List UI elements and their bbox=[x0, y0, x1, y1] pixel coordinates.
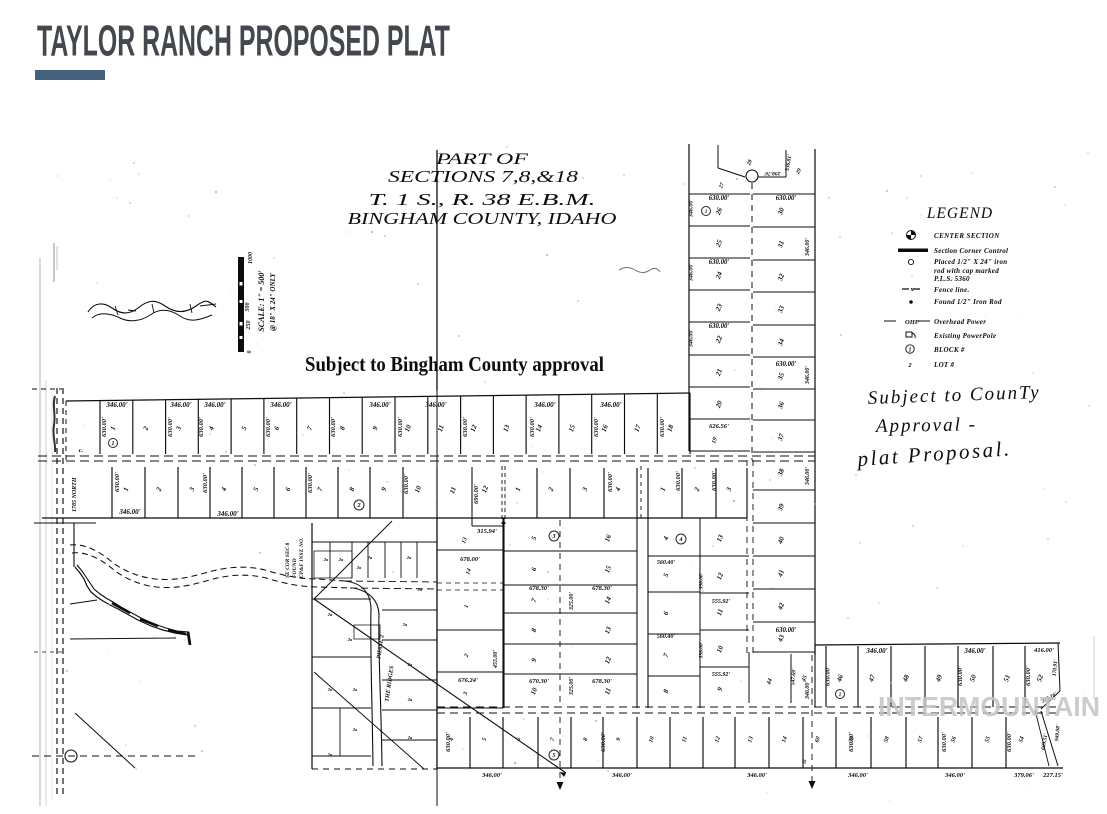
svg-text:7: 7 bbox=[550, 736, 557, 742]
svg-text:SCALE: 1" = 500′: SCALE: 1" = 500′ bbox=[257, 270, 266, 331]
svg-text:6: 6 bbox=[530, 566, 539, 572]
svg-text:9: 9 bbox=[371, 425, 380, 431]
svg-text:8: 8 bbox=[583, 737, 590, 742]
svg-text:3: 3 bbox=[187, 486, 196, 493]
svg-text:7: 7 bbox=[662, 652, 671, 658]
svg-text:12: 12 bbox=[480, 484, 490, 494]
svg-text:11: 11 bbox=[681, 736, 689, 743]
svg-text:346.00': 346.00' bbox=[689, 263, 695, 283]
svg-text:1: 1 bbox=[705, 209, 708, 215]
svg-text:plat Proposal.: plat Proposal. bbox=[855, 436, 1013, 471]
svg-text:346.00': 346.00' bbox=[847, 772, 868, 779]
svg-text:16: 16 bbox=[600, 423, 610, 433]
svg-text:8: 8 bbox=[348, 486, 357, 492]
svg-text:2: 2 bbox=[154, 486, 163, 493]
svg-text:6: 6 bbox=[273, 425, 282, 431]
svg-text:346.00': 346.00' bbox=[424, 401, 446, 409]
svg-text:630.00': 630.00' bbox=[593, 417, 600, 437]
svg-text:50: 50 bbox=[968, 673, 978, 683]
svg-text:31: 31 bbox=[776, 240, 786, 250]
svg-text:19: 19 bbox=[711, 437, 719, 445]
svg-text:60: 60 bbox=[814, 736, 822, 744]
svg-text:630.00': 630.00' bbox=[776, 361, 797, 368]
svg-text:555.92': 555.92' bbox=[712, 599, 731, 605]
svg-text:560.40': 560.40' bbox=[657, 560, 676, 566]
svg-text:1: 1 bbox=[109, 425, 118, 431]
svg-text:24: 24 bbox=[714, 270, 724, 281]
svg-text:CENTER SECTION: CENTER SECTION bbox=[934, 232, 1000, 240]
svg-text:13: 13 bbox=[747, 736, 755, 744]
svg-text:16: 16 bbox=[603, 533, 613, 543]
svg-text:29: 29 bbox=[795, 167, 804, 176]
svg-text:8: 8 bbox=[662, 688, 671, 694]
svg-text:676.24': 676.24' bbox=[458, 677, 478, 684]
svg-text:630.00': 630.00' bbox=[709, 195, 730, 202]
svg-text:10: 10 bbox=[403, 423, 413, 433]
svg-text:2a: 2a bbox=[407, 697, 413, 702]
svg-text:51: 51 bbox=[1002, 674, 1012, 683]
svg-text:346.00': 346.00' bbox=[689, 199, 695, 219]
svg-text:630.00': 630.00' bbox=[709, 323, 730, 330]
svg-text:10: 10 bbox=[715, 644, 725, 654]
svg-text:346.00': 346.00' bbox=[368, 401, 390, 409]
svg-text:346.00': 346.00' bbox=[805, 467, 811, 487]
svg-text:346.00': 346.00' bbox=[611, 772, 632, 779]
svg-text:14: 14 bbox=[465, 568, 473, 576]
svg-text:315.94': 315.94' bbox=[476, 528, 497, 535]
svg-text:35: 35 bbox=[776, 371, 786, 382]
svg-text:346.00': 346.00' bbox=[599, 401, 621, 409]
svg-text:57: 57 bbox=[917, 735, 925, 744]
svg-text:346.00': 346.00' bbox=[746, 772, 767, 779]
svg-text:670.30': 670.30' bbox=[529, 678, 549, 685]
svg-text:4: 4 bbox=[219, 486, 228, 493]
svg-text:630.00': 630.00' bbox=[600, 732, 607, 752]
svg-text:Found 1/2" Iron Rod: Found 1/2" Iron Rod bbox=[934, 298, 1002, 306]
svg-text:2a: 2a bbox=[338, 557, 344, 562]
svg-text:678.30': 678.30' bbox=[529, 585, 549, 592]
svg-text:346.00': 346.00' bbox=[118, 508, 140, 516]
svg-text:25: 25 bbox=[714, 238, 724, 249]
svg-text:9: 9 bbox=[616, 737, 623, 742]
svg-text:630.00': 630.00' bbox=[101, 417, 108, 437]
svg-text:32: 32 bbox=[776, 272, 786, 283]
svg-text:346.00': 346.00' bbox=[269, 401, 291, 409]
svg-text:4: 4 bbox=[613, 486, 622, 493]
svg-text:SECTIONS 7,8,&18: SECTIONS 7,8,&18 bbox=[388, 167, 579, 186]
svg-text:346.00': 346.00' bbox=[203, 401, 225, 409]
svg-text:690.00': 690.00' bbox=[473, 484, 480, 504]
svg-text:CP&F INST. NO.: CP&F INST. NO. bbox=[299, 538, 305, 578]
svg-text:FOUND: FOUND bbox=[292, 558, 298, 578]
svg-text:6: 6 bbox=[516, 737, 523, 742]
svg-text:27: 27 bbox=[718, 182, 726, 190]
svg-text:346.00': 346.00' bbox=[805, 681, 811, 701]
svg-text:2a: 2a bbox=[352, 687, 358, 692]
svg-text:2a: 2a bbox=[352, 727, 358, 732]
svg-text:Placed 1/2" X 24" iron: Placed 1/2" X 24" iron bbox=[934, 258, 1007, 266]
svg-text:346.00': 346.00' bbox=[805, 238, 811, 258]
svg-text:46: 46 bbox=[835, 673, 845, 684]
svg-text:2a: 2a bbox=[347, 637, 353, 642]
svg-text:12: 12 bbox=[603, 655, 613, 665]
svg-text:36: 36 bbox=[776, 400, 786, 411]
svg-text:678.30': 678.30' bbox=[592, 678, 612, 685]
svg-text:398.00': 398.00' bbox=[699, 572, 705, 590]
svg-text:555.92': 555.92' bbox=[712, 672, 731, 678]
svg-text:630.00': 630.00' bbox=[330, 417, 337, 437]
svg-text:@ 18" X 24" ONLY: @ 18" X 24" ONLY bbox=[269, 272, 277, 330]
svg-text:630.00': 630.00' bbox=[941, 732, 948, 752]
svg-text:BINGHAM COUNTY, IDAHO: BINGHAM COUNTY, IDAHO bbox=[348, 209, 617, 228]
svg-text:3: 3 bbox=[462, 691, 469, 697]
svg-text:INTERMOUNTAIN: INTERMOUNTAIN bbox=[878, 691, 1100, 722]
svg-text:3: 3 bbox=[724, 486, 733, 493]
svg-text:12: 12 bbox=[714, 736, 722, 744]
svg-text:39: 39 bbox=[776, 502, 786, 513]
svg-text:3: 3 bbox=[552, 534, 556, 540]
svg-text:11: 11 bbox=[715, 608, 725, 617]
svg-text:630.00': 630.00' bbox=[265, 417, 272, 437]
svg-text:Fence line.: Fence line. bbox=[934, 286, 970, 294]
svg-text:10: 10 bbox=[529, 686, 539, 696]
svg-text:44: 44 bbox=[766, 678, 774, 687]
svg-text:Subject to Bingham County appr: Subject to Bingham County approval bbox=[305, 352, 604, 376]
svg-text:SE COR SEC 8: SE COR SEC 8 bbox=[285, 542, 291, 578]
svg-text:5: 5 bbox=[530, 535, 539, 541]
svg-text:12: 12 bbox=[469, 423, 479, 433]
svg-text:455.00': 455.00' bbox=[493, 650, 499, 670]
svg-text:9: 9 bbox=[530, 657, 539, 663]
svg-text:630.00': 630.00' bbox=[198, 417, 205, 437]
svg-text:630.00': 630.00' bbox=[825, 666, 832, 686]
svg-text:398.00': 398.00' bbox=[699, 641, 705, 659]
svg-text:13: 13 bbox=[603, 625, 613, 635]
svg-text:325.00': 325.00' bbox=[569, 592, 575, 612]
svg-text:5: 5 bbox=[252, 486, 261, 492]
svg-text:630.00': 630.00' bbox=[776, 627, 797, 634]
svg-text:13: 13 bbox=[502, 423, 512, 433]
svg-text:5: 5 bbox=[553, 753, 556, 759]
svg-text:13: 13 bbox=[715, 533, 725, 543]
svg-text:37: 37 bbox=[776, 432, 786, 443]
svg-text:678.30': 678.30' bbox=[592, 585, 612, 592]
svg-text:1: 1 bbox=[112, 441, 115, 447]
svg-text:17: 17 bbox=[633, 423, 643, 433]
svg-text:630.00': 630.00' bbox=[848, 732, 855, 752]
svg-text:54: 54 bbox=[1018, 736, 1026, 744]
svg-text:21: 21 bbox=[714, 368, 724, 378]
svg-text:42: 42 bbox=[776, 601, 786, 612]
svg-text:1: 1 bbox=[122, 486, 131, 492]
svg-text:8: 8 bbox=[530, 627, 539, 633]
svg-text:1000: 1000 bbox=[248, 252, 254, 264]
svg-text:379.06': 379.06' bbox=[1013, 772, 1034, 779]
svg-text:325.00': 325.00' bbox=[569, 677, 575, 697]
svg-text:12: 12 bbox=[715, 571, 725, 581]
svg-text:2a: 2a bbox=[327, 612, 333, 617]
svg-text:8: 8 bbox=[338, 425, 347, 431]
svg-text:4: 4 bbox=[661, 535, 670, 542]
svg-text:1: 1 bbox=[909, 348, 912, 354]
svg-text:30: 30 bbox=[776, 206, 786, 217]
svg-text:40: 40 bbox=[776, 535, 786, 546]
svg-text:5: 5 bbox=[240, 425, 249, 431]
svg-text:Overhead Power: Overhead Power bbox=[934, 318, 986, 326]
svg-text:2a: 2a bbox=[323, 557, 329, 562]
svg-text:11: 11 bbox=[603, 687, 613, 696]
svg-text:34: 34 bbox=[776, 337, 786, 348]
svg-text:949.08': 949.08' bbox=[1054, 724, 1061, 742]
svg-text:41: 41 bbox=[776, 569, 786, 579]
svg-text:547.69': 547.69' bbox=[790, 668, 797, 686]
svg-text:346.00': 346.00' bbox=[533, 401, 555, 409]
svg-text:630.00': 630.00' bbox=[202, 473, 209, 493]
svg-text:23: 23 bbox=[714, 302, 724, 313]
svg-text:9: 9 bbox=[380, 486, 389, 492]
svg-text:630.00': 630.00' bbox=[114, 472, 121, 492]
svg-text:Existing PowerPole: Existing PowerPole bbox=[933, 332, 996, 340]
svg-text:2: 2 bbox=[357, 503, 361, 509]
svg-text:630.00': 630.00' bbox=[307, 473, 314, 493]
svg-text:4: 4 bbox=[207, 425, 216, 432]
svg-text:2a: 2a bbox=[327, 752, 333, 757]
svg-text:346.00': 346.00' bbox=[963, 647, 985, 655]
svg-text:630.00': 630.00' bbox=[445, 732, 452, 752]
svg-text:22: 22 bbox=[714, 334, 724, 345]
svg-text:500: 500 bbox=[245, 303, 251, 312]
svg-text:14: 14 bbox=[603, 595, 613, 605]
svg-text:52: 52 bbox=[1035, 673, 1045, 683]
svg-text:3: 3 bbox=[580, 486, 589, 493]
svg-text:298.76': 298.76' bbox=[763, 170, 781, 176]
svg-text:38: 38 bbox=[776, 467, 786, 478]
svg-text:630.00': 630.00' bbox=[462, 417, 469, 437]
svg-text:11: 11 bbox=[448, 486, 458, 495]
svg-text:1: 1 bbox=[839, 692, 842, 698]
svg-text:2: 2 bbox=[463, 653, 470, 659]
svg-text:6: 6 bbox=[284, 486, 293, 492]
svg-text:7: 7 bbox=[530, 597, 539, 603]
svg-text:33: 33 bbox=[776, 304, 786, 315]
svg-text:Subject to CounTy: Subject to CounTy bbox=[867, 382, 1041, 409]
svg-text:56: 56 bbox=[950, 736, 958, 744]
svg-text:2: 2 bbox=[692, 486, 701, 493]
svg-text:678.00': 678.00' bbox=[460, 556, 480, 563]
svg-text:20: 20 bbox=[714, 399, 724, 410]
svg-text:10: 10 bbox=[648, 736, 656, 744]
svg-text:14: 14 bbox=[781, 736, 789, 744]
svg-text:58: 58 bbox=[883, 736, 891, 744]
svg-text:T. 1 S., R. 38 E.B.M.: T. 1 S., R. 38 E.B.M. bbox=[369, 190, 596, 209]
svg-text:630.00': 630.00' bbox=[711, 471, 718, 491]
svg-text:6: 6 bbox=[662, 610, 671, 616]
svg-text:10: 10 bbox=[413, 484, 423, 494]
svg-text:2: 2 bbox=[907, 362, 912, 369]
svg-text:13: 13 bbox=[461, 537, 469, 545]
svg-text:416.00': 416.00' bbox=[1033, 647, 1054, 654]
svg-text:rod with cap marked: rod with cap marked bbox=[934, 267, 999, 275]
svg-text:PART OF: PART OF bbox=[434, 151, 528, 168]
svg-text:9: 9 bbox=[716, 686, 725, 692]
svg-text:LOT #: LOT # bbox=[933, 361, 955, 369]
svg-text:346.00': 346.00' bbox=[481, 772, 502, 779]
svg-text:346.00': 346.00' bbox=[944, 772, 965, 779]
svg-text:4: 4 bbox=[679, 537, 683, 543]
svg-text:c.: c. bbox=[79, 447, 84, 454]
svg-text:7: 7 bbox=[316, 486, 325, 492]
svg-text:15: 15 bbox=[603, 564, 613, 574]
svg-text:630.00': 630.00' bbox=[167, 417, 174, 437]
svg-text:0: 0 bbox=[247, 351, 253, 354]
svg-text:630.00': 630.00' bbox=[403, 474, 410, 494]
svg-text:26: 26 bbox=[714, 206, 724, 217]
svg-text:2: 2 bbox=[141, 425, 150, 432]
svg-text:28: 28 bbox=[746, 159, 754, 167]
svg-text:43: 43 bbox=[776, 633, 786, 644]
svg-text:630.00': 630.00' bbox=[675, 471, 682, 491]
svg-text:OHP: OHP bbox=[905, 319, 920, 326]
svg-text:2a: 2a bbox=[356, 565, 362, 570]
svg-text:48: 48 bbox=[901, 673, 911, 684]
svg-text:630.00': 630.00' bbox=[957, 666, 964, 686]
svg-text:1: 1 bbox=[514, 486, 523, 492]
svg-text:2a: 2a bbox=[417, 587, 423, 592]
svg-text:630.00': 630.00' bbox=[776, 195, 797, 202]
svg-text:346.00': 346.00' bbox=[105, 401, 127, 409]
svg-text:2a: 2a bbox=[367, 555, 373, 560]
svg-text:THE RIDGES: THE RIDGES bbox=[385, 665, 396, 702]
svg-text:630.00': 630.00' bbox=[397, 417, 404, 437]
svg-text:346.00': 346.00' bbox=[805, 366, 811, 386]
svg-text:346.00': 346.00' bbox=[216, 510, 238, 518]
svg-text:LEGEND: LEGEND bbox=[926, 205, 993, 222]
svg-text:5: 5 bbox=[482, 737, 489, 742]
svg-text:630.00': 630.00' bbox=[607, 472, 614, 492]
svg-text:Section Corner Control: Section Corner Control bbox=[934, 247, 1008, 255]
svg-text:630.00': 630.00' bbox=[709, 259, 730, 266]
svg-text:7: 7 bbox=[305, 425, 314, 431]
svg-text:2: 2 bbox=[546, 486, 555, 493]
svg-text:16: 16 bbox=[802, 758, 808, 764]
svg-text:346.00': 346.00' bbox=[689, 329, 695, 349]
svg-text:15: 15 bbox=[567, 423, 577, 433]
svg-text:1: 1 bbox=[464, 604, 471, 609]
svg-text:x: x bbox=[911, 287, 914, 293]
svg-text:227.15': 227.15' bbox=[1042, 772, 1063, 779]
svg-text:346.00': 346.00' bbox=[169, 401, 191, 409]
svg-text:2a: 2a bbox=[406, 555, 412, 560]
svg-text:630.00': 630.00' bbox=[1006, 732, 1013, 752]
svg-text:3: 3 bbox=[174, 425, 183, 432]
svg-text:Approval -: Approval - bbox=[874, 414, 977, 437]
svg-text:346.00': 346.00' bbox=[865, 647, 887, 655]
svg-text:2a: 2a bbox=[407, 735, 413, 740]
svg-text:14: 14 bbox=[534, 423, 544, 433]
svg-text:630.00': 630.00' bbox=[659, 417, 666, 437]
svg-text:250: 250 bbox=[246, 321, 252, 331]
svg-text:47: 47 bbox=[867, 673, 877, 684]
svg-text:5: 5 bbox=[662, 572, 671, 578]
svg-text:55: 55 bbox=[984, 736, 992, 744]
svg-text:609.51': 609.51' bbox=[1041, 733, 1050, 751]
svg-text:18: 18 bbox=[665, 423, 675, 433]
svg-text:630.00': 630.00' bbox=[1025, 666, 1032, 686]
svg-text:BLOCK #: BLOCK # bbox=[933, 346, 965, 354]
svg-text:P.L.S. 5360: P.L.S. 5360 bbox=[934, 275, 970, 283]
svg-text:1785 NORTH: 1785 NORTH bbox=[72, 477, 78, 512]
svg-text:2a: 2a bbox=[402, 622, 408, 627]
svg-text:170.91': 170.91' bbox=[1052, 659, 1059, 677]
svg-text:49: 49 bbox=[934, 673, 944, 684]
svg-text:626.56': 626.56' bbox=[709, 423, 729, 430]
svg-text:560.40': 560.40' bbox=[657, 634, 676, 640]
svg-text:TAYLOR RANCH PROPOSED PLAT: TAYLOR RANCH PROPOSED PLAT bbox=[37, 17, 450, 66]
